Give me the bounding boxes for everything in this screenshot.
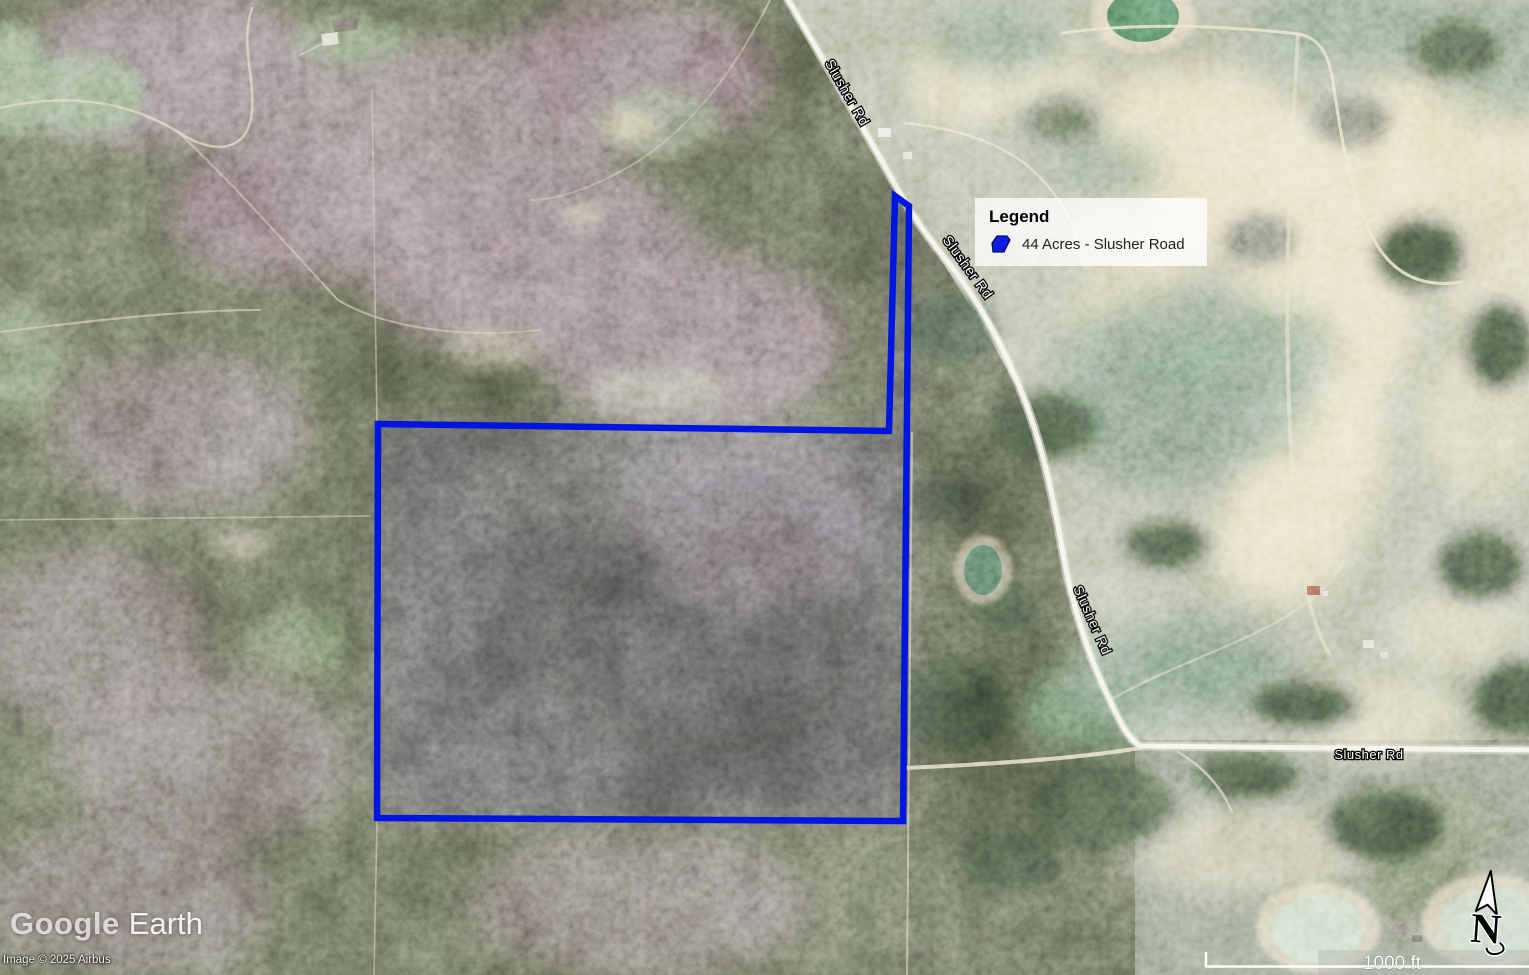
parcel-polygon-icon (989, 233, 1015, 255)
legend-title: Legend (989, 207, 1207, 227)
google-logo-text: Google (10, 906, 120, 941)
legend-item-label: 44 Acres - Slusher Road (1022, 236, 1185, 253)
earth-logo-text: Earth (129, 906, 203, 941)
copyright-text: Image © 2025 Airbus (3, 954, 111, 966)
google-earth-viewport: Slusher Rd Slusher Rd Slusher Rd Slusher… (0, 0, 1529, 975)
north-label: N (1469, 906, 1502, 954)
legend: Legend 44 Acres - Slusher Road (975, 198, 1207, 266)
legend-item: 44 Acres - Slusher Road (989, 233, 1207, 255)
scale-label: 1000 ft (1363, 953, 1422, 974)
satellite-map: Slusher Rd Slusher Rd Slusher Rd Slusher… (0, 0, 1529, 975)
google-earth-watermark: GoogleEarth (10, 906, 203, 942)
road-label-east: Slusher Rd (1334, 747, 1403, 762)
